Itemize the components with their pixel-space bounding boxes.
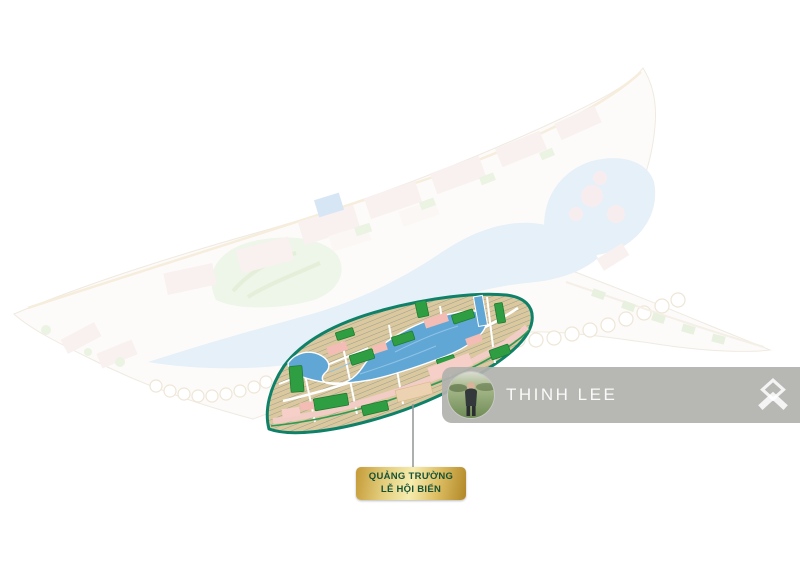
- chevron-logo-icon: [754, 377, 792, 415]
- callout-line2: LỄ HỘI BIỂN: [381, 484, 441, 496]
- callout-line1: QUẢNG TRƯỜNG: [369, 471, 454, 483]
- avatar-photo: [448, 372, 494, 418]
- callout-label: QUẢNG TRƯỜNG LỄ HỘI BIỂN: [356, 467, 466, 500]
- watermark-bar: THINH LEE: [442, 367, 800, 423]
- avatar: [448, 372, 494, 418]
- screenshot-canvas: QUẢNG TRƯỜNG LỄ HỘI BIỂN: [0, 0, 800, 566]
- watermark-name: THINH LEE: [506, 385, 617, 405]
